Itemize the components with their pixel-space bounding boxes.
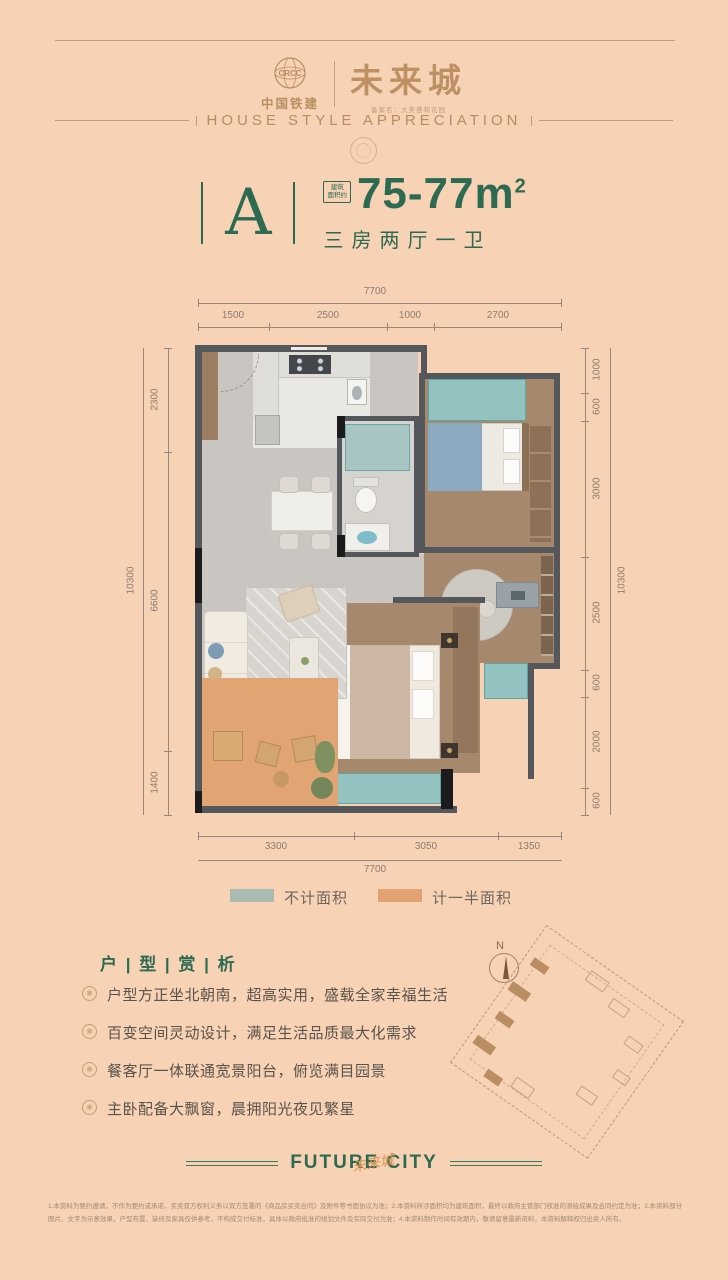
dim-right-5: 600: [592, 653, 603, 713]
sink-basin: [352, 386, 362, 400]
slogan-line-left: [186, 1161, 278, 1166]
tick: [434, 323, 435, 331]
banner-tick-left: [196, 116, 197, 126]
logo-divider: [334, 61, 335, 107]
column: [337, 535, 345, 557]
dining-chair: [311, 476, 331, 493]
tick: [198, 832, 199, 840]
flower-bullet-icon: ❋: [82, 1062, 97, 1077]
wall: [419, 373, 425, 547]
rooms-desc: 三房两厅一卫: [323, 224, 526, 253]
banner-tick-right: [531, 116, 532, 126]
dim-bottom-total: 7700: [340, 864, 410, 875]
list-item: ❋ 餐客厅一体联通宽景阳台，俯览满目园景: [82, 1060, 482, 1081]
area-badge-line1: 建筑: [327, 184, 347, 192]
laptop: [511, 591, 525, 600]
basin: [357, 531, 377, 544]
brand-name: 中国铁建: [261, 93, 319, 112]
tick: [581, 393, 589, 394]
flower-bullet-icon: ❋: [82, 1024, 97, 1039]
tick: [581, 421, 589, 422]
master-wardrobe: [453, 607, 478, 753]
tick: [164, 751, 172, 752]
dim-left-1: 2300: [150, 370, 161, 430]
balcony-table: [213, 731, 243, 761]
poster-page: CRCC 中国铁建 未来城 备案名：大美荟和花园 HOUSE STYLE APP…: [0, 0, 728, 1280]
compass-needle: [503, 956, 509, 979]
tick: [269, 323, 270, 331]
tick: [387, 323, 388, 331]
tick: [581, 348, 589, 349]
flower-bullet-icon: ❋: [82, 1100, 97, 1115]
toilet-tank: [353, 477, 379, 487]
banner-line-right: [539, 120, 673, 121]
bullet-text: 百变空间灵动设计，满足生活品质最大化需求: [107, 1022, 417, 1043]
tick: [561, 323, 562, 331]
dim-right-2: 600: [592, 377, 603, 437]
dim-line: [198, 836, 562, 837]
list-item: ❋ 百变空间灵动设计，满足生活品质最大化需求: [82, 1022, 482, 1043]
dim-left-3: 1400: [150, 753, 161, 813]
bullet-text: 餐客厅一体联通宽景阳台，俯览满目园景: [107, 1060, 386, 1081]
bullet-text: 户型方正坐北朝南，超高实用，盛载全家幸福生活: [107, 984, 448, 1005]
bedroom2-wardrobe: [530, 426, 551, 542]
column: [441, 769, 453, 809]
column: [337, 416, 345, 438]
list-item: ❋ 主卧配备大飘窗，晨拥阳光夜见繁星: [82, 1098, 482, 1119]
dim-top-4: 2700: [463, 310, 533, 321]
dining-chair: [311, 533, 331, 550]
shower: [345, 424, 410, 471]
wall: [421, 373, 560, 379]
disclaimer-text: 1.本资料为要约邀请，不作为要约或承诺，买卖双方权利义务以双方签署的《商品房买卖…: [48, 1200, 682, 1226]
unit-letter: A: [225, 181, 271, 245]
wall: [195, 806, 345, 813]
dim-left-outer: 10300: [126, 551, 137, 611]
analysis-bullets: ❋ 户型方正坐北朝南，超高实用，盛载全家幸福生活 ❋ 百变空间灵动设计，满足生活…: [82, 984, 482, 1136]
dim-bottom-2: 3050: [391, 841, 461, 852]
bookshelf: [541, 556, 553, 656]
tick: [581, 788, 589, 789]
bedroom2-headboard: [522, 423, 529, 491]
nightstand: [441, 633, 458, 648]
crcc-globe-icon: CRCC: [273, 56, 307, 90]
kitchen-sink: [347, 379, 367, 405]
bullet-text: 主卧配备大飘窗，晨拥阳光夜见繁星: [107, 1098, 355, 1119]
column: [195, 791, 202, 813]
dim-right-3: 3000: [592, 459, 603, 519]
fridge: [255, 415, 280, 445]
tick: [198, 323, 199, 331]
top-rule: [55, 40, 675, 41]
bay-window-bedroom2: [428, 379, 526, 421]
dim-bottom-3: 1350: [494, 841, 564, 852]
dim-line: [585, 348, 586, 815]
legend-swatch-excluded: [230, 889, 274, 902]
project-name-block: 未来城 备案名：大美荟和花园: [350, 54, 467, 114]
analysis-title: 户 | 型 | 赏 | 析: [100, 950, 237, 975]
dim-right-7: 600: [592, 771, 603, 831]
study-desk: [496, 582, 539, 608]
dim-line: [198, 860, 562, 861]
tick: [164, 452, 172, 453]
window-slit: [291, 347, 327, 350]
area-number: 75-77m: [357, 169, 515, 218]
tick: [581, 815, 589, 816]
unit-bar-left: [201, 182, 203, 244]
banner-text: HOUSE STYLE APPRECIATION: [204, 112, 525, 129]
balcony-stool: [273, 771, 289, 787]
tick: [561, 299, 562, 307]
unit-bar-right: [293, 182, 295, 244]
flower-bullet-icon: ❋: [82, 986, 97, 1001]
tick: [581, 697, 589, 698]
svg-text:CRCC: CRCC: [278, 69, 301, 78]
area-badge-line2: 面积约: [327, 192, 347, 200]
dining-chair: [279, 476, 299, 493]
dim-right-6: 2000: [592, 712, 603, 772]
seal-ornament: [350, 137, 377, 164]
floor-plan: [195, 345, 565, 813]
logo-row: CRCC 中国铁建 未来城 备案名：大美荟和花园: [0, 54, 728, 114]
dim-line: [198, 303, 562, 304]
banner-row: HOUSE STYLE APPRECIATION: [55, 112, 673, 129]
dim-line: [198, 327, 562, 328]
area-value: 75-77m2: [357, 172, 527, 216]
dim-right-outer: 10300: [617, 551, 628, 611]
north-label: N: [496, 940, 504, 952]
dining-chair: [279, 533, 299, 550]
crcc-brand: CRCC 中国铁建: [261, 56, 319, 112]
slogan-line-right: [450, 1161, 542, 1166]
wall: [528, 663, 534, 779]
legend-label-half: 计一半面积: [432, 887, 512, 908]
coffee-table: [289, 637, 319, 683]
toilet: [355, 487, 377, 513]
tick: [354, 832, 355, 840]
tick: [581, 557, 589, 558]
column: [195, 548, 202, 603]
bed-pillow: [412, 651, 434, 681]
dim-line: [168, 348, 169, 815]
master-duvet: [350, 645, 410, 759]
bed-pillow: [503, 459, 520, 484]
nightstand: [441, 743, 458, 758]
legend-label-excluded: 不计面积: [284, 887, 348, 908]
project-name: 未来城: [350, 54, 467, 102]
wall: [554, 373, 560, 669]
table-plant: [301, 657, 309, 665]
unit-headline: A 建筑 面积约 75-77m2 三房两厅一卫: [0, 172, 728, 253]
dim-top-2: 2500: [293, 310, 363, 321]
dim-bottom-1: 3300: [241, 841, 311, 852]
vanity: [345, 523, 390, 551]
dim-line: [610, 348, 611, 815]
bay-window-master: [331, 773, 441, 804]
wall: [325, 806, 457, 813]
tick: [164, 348, 172, 349]
dim-top-3: 1000: [375, 310, 445, 321]
balcony-plant: [311, 777, 333, 799]
balcony-plant: [315, 741, 335, 773]
area-sup: 2: [515, 175, 527, 197]
bed-pillow: [503, 428, 520, 453]
tick: [198, 299, 199, 307]
list-item: ❋ 户型方正坐北朝南，超高实用，盛载全家幸福生活: [82, 984, 482, 1005]
bay-window-right: [484, 663, 528, 699]
legend-swatch-half: [378, 889, 422, 902]
dim-right-4: 2500: [592, 583, 603, 643]
bed-pillow: [412, 689, 434, 719]
dim-top-1: 1500: [198, 310, 268, 321]
dining-table: [271, 491, 333, 531]
dim-line: [143, 348, 144, 815]
tick: [498, 832, 499, 840]
tick: [581, 670, 589, 671]
banner-line-left: [55, 120, 189, 121]
stove: [289, 355, 331, 374]
bedroom2-blanket: [428, 423, 482, 491]
sofa-pillow: [208, 643, 224, 659]
dim-left-2: 6600: [150, 571, 161, 631]
tick: [164, 815, 172, 816]
entry-cabinet: [202, 352, 218, 440]
dim-top-total: 7700: [340, 286, 410, 297]
area-badge: 建筑 面积约: [323, 181, 351, 203]
unit-info: 建筑 面积约 75-77m2 三房两厅一卫: [323, 172, 526, 253]
site-plan: [450, 925, 684, 1159]
tick: [561, 832, 562, 840]
